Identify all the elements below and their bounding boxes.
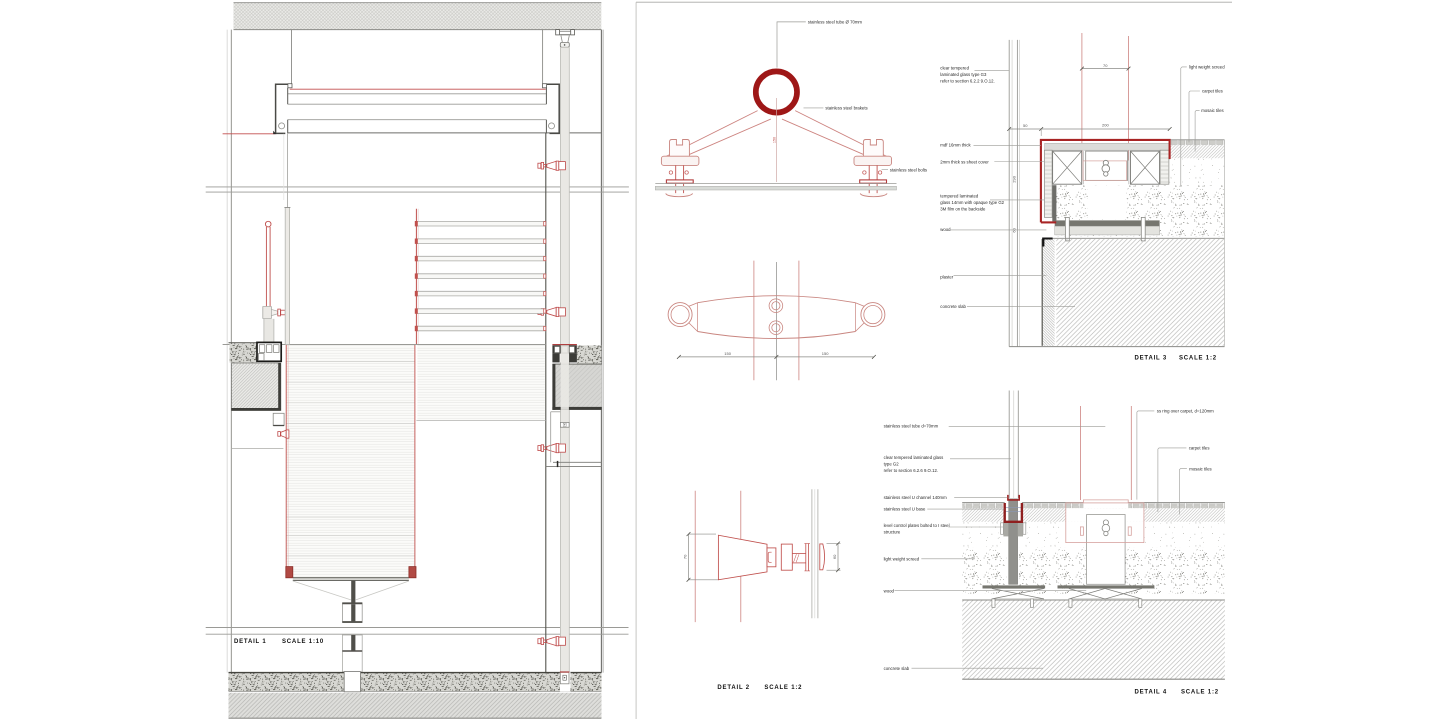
svg-text:plaster: plaster bbox=[940, 275, 953, 280]
svg-text:150: 150 bbox=[773, 137, 777, 143]
svg-text:150: 150 bbox=[724, 351, 731, 356]
svg-text:SCALE 1:2: SCALE 1:2 bbox=[764, 685, 802, 691]
svg-text:clear tempered: clear tempered bbox=[940, 66, 969, 71]
svg-text:200: 200 bbox=[1102, 123, 1109, 128]
svg-text:stainless steel tube Ø 70mm: stainless steel tube Ø 70mm bbox=[808, 20, 863, 25]
svg-text:stainless steel bolts: stainless steel bolts bbox=[890, 168, 927, 173]
svg-text:150: 150 bbox=[822, 351, 829, 356]
svg-text:DETAIL 4: DETAIL 4 bbox=[1135, 690, 1168, 696]
svg-text:SCALE 1:2: SCALE 1:2 bbox=[1179, 356, 1217, 362]
svg-text:wood: wood bbox=[940, 227, 951, 232]
svg-text:mdf 16mm thick: mdf 16mm thick bbox=[940, 142, 971, 147]
svg-text:concrete slab: concrete slab bbox=[940, 304, 966, 309]
svg-text:50: 50 bbox=[1023, 123, 1028, 128]
svg-text:refer to section 6.2.2 9.O.12: refer to section 6.2.2 9.O.12. bbox=[940, 79, 994, 84]
svg-text:DETAIL 3: DETAIL 3 bbox=[1135, 356, 1168, 362]
svg-text:type G2: type G2 bbox=[884, 462, 900, 467]
svg-text:light weight screed: light weight screed bbox=[884, 556, 920, 561]
svg-text:concrete slab: concrete slab bbox=[884, 666, 910, 671]
svg-text:glass 14mm with opaque type G2: glass 14mm with opaque type G2 bbox=[940, 200, 1004, 205]
svg-text:290: 290 bbox=[1012, 175, 1017, 182]
svg-text:tempered laminated: tempered laminated bbox=[940, 194, 979, 199]
svg-text:carpet tiles: carpet tiles bbox=[1202, 89, 1223, 94]
svg-text:light weight screed: light weight screed bbox=[1189, 64, 1225, 69]
svg-text:stainless steel U base: stainless steel U base bbox=[884, 507, 926, 512]
svg-text:70: 70 bbox=[1103, 63, 1108, 68]
svg-text:SCALE 1:10: SCALE 1:10 bbox=[282, 639, 324, 645]
svg-text:clear tempered laminated glass: clear tempered laminated glass bbox=[884, 455, 944, 460]
svg-text:mosaic tiles: mosaic tiles bbox=[1189, 466, 1211, 471]
svg-text:ss ring over carpet, d=120mm: ss ring over carpet, d=120mm bbox=[1157, 409, 1214, 414]
svg-text:3M film on the backside: 3M film on the backside bbox=[940, 207, 986, 212]
svg-text:structure: structure bbox=[884, 530, 901, 535]
svg-text:carpet tiles: carpet tiles bbox=[1189, 446, 1210, 451]
svg-text:DETAIL 1: DETAIL 1 bbox=[234, 639, 267, 645]
svg-text:60: 60 bbox=[832, 554, 837, 559]
svg-text:stainless steel U channel 140: stainless steel U channel 140mm bbox=[884, 495, 947, 500]
svg-text:refer to section 6.2.6 9.O.12: refer to section 6.2.6 9.O.12. bbox=[884, 468, 938, 473]
svg-text:stainless steel tube d=70mm: stainless steel tube d=70mm bbox=[884, 423, 939, 428]
svg-text:DETAIL 2: DETAIL 2 bbox=[717, 685, 750, 691]
svg-text:level control plates bolted to: level control plates bolted to I steel bbox=[884, 523, 950, 528]
svg-text:wood: wood bbox=[884, 588, 895, 593]
svg-text:SCALE 1:2: SCALE 1:2 bbox=[1181, 690, 1219, 696]
svg-text:mosaic tiles: mosaic tiles bbox=[1201, 108, 1223, 113]
svg-text:laminated glass type G3: laminated glass type G3 bbox=[940, 72, 987, 77]
svg-text:stainless steel brakets: stainless steel brakets bbox=[825, 106, 867, 111]
svg-text:70: 70 bbox=[683, 554, 688, 559]
svg-text:2mm thick ss sheet cover: 2mm thick ss sheet cover bbox=[940, 159, 989, 164]
